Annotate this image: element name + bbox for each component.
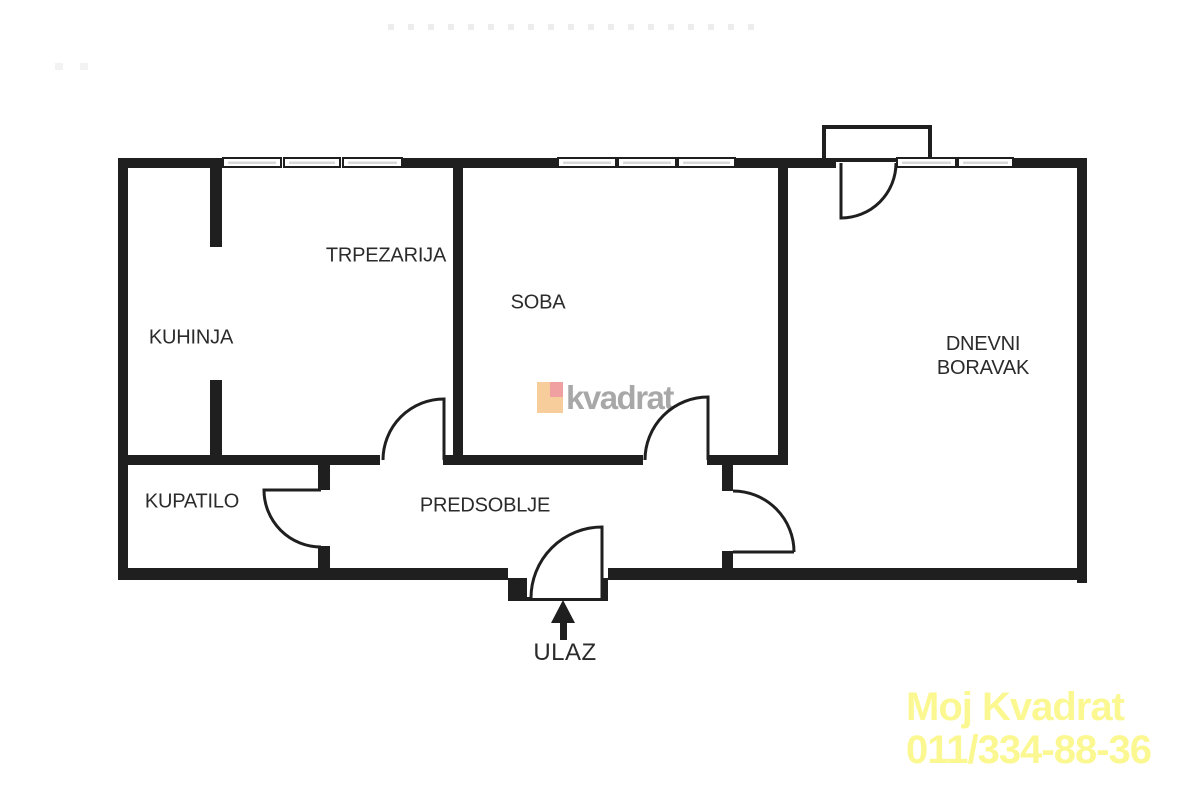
window	[343, 158, 402, 167]
faint-dots-row	[388, 24, 765, 30]
kvadrat-logo-pink-square	[550, 382, 563, 397]
window	[958, 158, 1013, 167]
windows	[223, 158, 1013, 167]
door-trpezarija	[383, 399, 444, 460]
agency-watermark-name: Moj Kvadrat	[906, 686, 1151, 729]
room-label-dnevni-boravak: DNEVNI BORAVAK	[908, 332, 1058, 380]
agency-watermark-phone: 011/334-88-36	[906, 729, 1151, 772]
window	[223, 158, 281, 167]
door-kupatilo	[264, 490, 321, 547]
balcony-threshold	[824, 127, 930, 160]
agency-watermark: Moj Kvadrat 011/334-88-36	[906, 686, 1151, 772]
room-label-kupatilo: KUPATILO	[145, 491, 239, 514]
door-dnevni-boravak	[733, 491, 794, 552]
door-entrance	[531, 527, 602, 598]
faint-dot	[55, 63, 63, 70]
entrance-arrow-icon	[551, 600, 575, 640]
window	[618, 158, 676, 167]
kvadrat-watermark: kvadrat	[537, 382, 673, 413]
entrance-label: ULAZ	[533, 639, 596, 667]
window	[897, 158, 956, 167]
room-label-soba: SOBA	[511, 292, 566, 315]
kvadrat-watermark-text: kvadrat	[566, 382, 673, 413]
window	[678, 158, 735, 167]
floor-plan-image: kvadrat	[0, 0, 1200, 799]
window	[558, 158, 616, 167]
door-balcony	[841, 163, 896, 218]
room-label-trpezarija: TRPEZARIJA	[326, 245, 446, 268]
room-label-predsoblje: PREDSOBLJE	[420, 495, 550, 518]
room-label-kuhinja: KUHINJA	[149, 327, 233, 350]
window	[284, 158, 340, 167]
kvadrat-logo-icon	[537, 382, 563, 413]
faint-dot	[80, 63, 88, 70]
